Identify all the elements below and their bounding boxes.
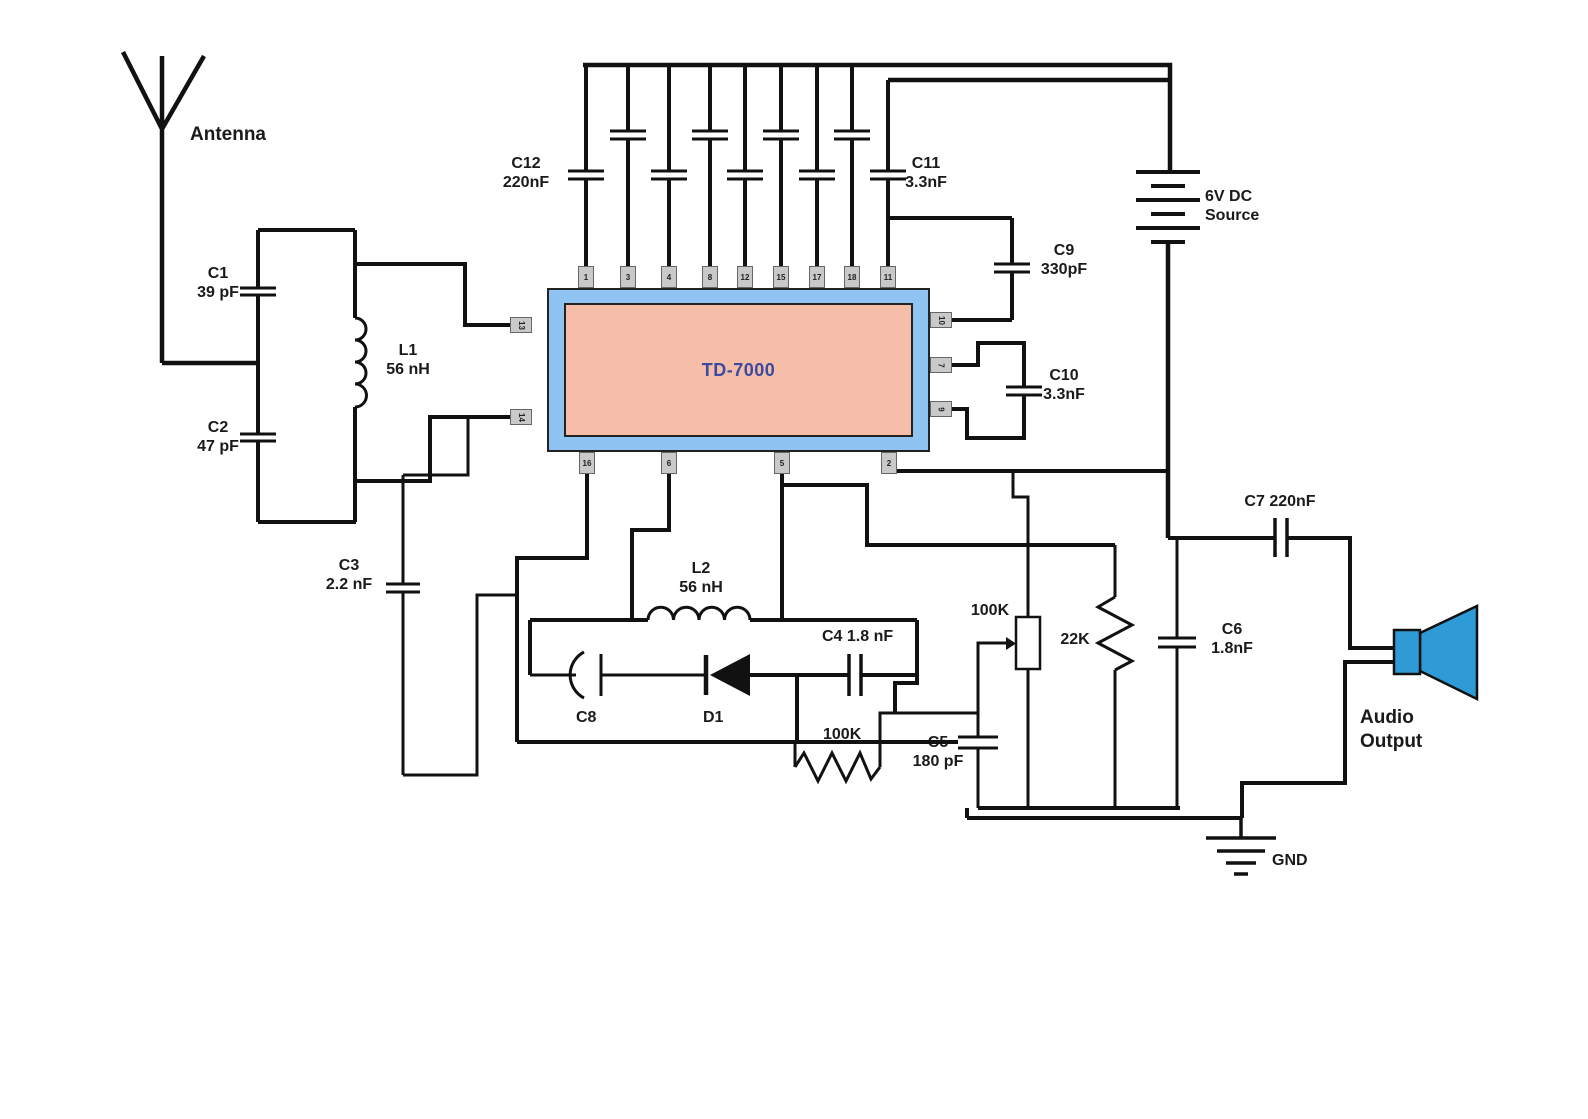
- antenna-label: Antenna: [190, 123, 266, 147]
- ic-pin-15: 15: [773, 266, 789, 288]
- c5-capacitor-icon: [958, 713, 998, 808]
- ic-pin-7: 7: [930, 357, 952, 373]
- ic-pin-16: 16: [579, 452, 595, 474]
- tank-circuit-wires: [258, 230, 356, 522]
- battery-icon: [1136, 172, 1200, 242]
- gnd-icon: [1206, 818, 1276, 874]
- ic-pin-10: 10: [930, 312, 952, 328]
- gnd-label: GND: [1272, 851, 1308, 870]
- c8-capacitor-icon: [530, 652, 706, 698]
- c1-label: C1 39 pF: [178, 264, 258, 302]
- wire-pin5-branch: [782, 485, 1115, 545]
- c8-label: C8: [576, 708, 596, 727]
- l2-label: L2 56 nH: [661, 559, 741, 597]
- l1-inductor-icon: [355, 318, 366, 407]
- wire-pin14: [355, 417, 510, 481]
- d1-label: D1: [703, 708, 723, 727]
- ic-pin-8: 8: [702, 266, 718, 288]
- top-bus-wire: [583, 65, 1170, 172]
- top-capacitor-bank: [568, 65, 906, 266]
- ic-pin-4: 4: [661, 266, 677, 288]
- speaker-icon: [1394, 606, 1477, 699]
- c6-label: C6 1.8nF: [1192, 620, 1272, 658]
- c7-label: C7 220nF: [1220, 492, 1340, 511]
- ic-label: TD-7000: [702, 360, 776, 381]
- c2-label: C2 47 pF: [178, 418, 258, 456]
- ic-pin-14: 14: [510, 409, 532, 425]
- c10-label: C10 3.3nF: [1024, 366, 1104, 404]
- audio-output-label: Audio Output: [1360, 706, 1422, 754]
- ic-pin-3: 3: [620, 266, 636, 288]
- wire-pin16: [517, 474, 587, 742]
- wire-c3-top: [403, 417, 468, 475]
- schematic-canvas: TD-7000 1 3 4 8 12 15 17 18 11 13 14 10 …: [0, 0, 1588, 1119]
- wire-pin6: [632, 474, 669, 620]
- ic-pin-12: 12: [737, 266, 753, 288]
- ic-chip: TD-7000: [547, 288, 930, 452]
- c11-label: C11 3.3nF: [886, 154, 966, 192]
- ic-pin-1: 1: [578, 266, 594, 288]
- wire-c3-return: [403, 595, 517, 775]
- r1-resistor-icon: [795, 742, 880, 781]
- ic-pin-5: 5: [774, 452, 790, 474]
- r2-resistor-icon: [1098, 545, 1132, 808]
- ic-pin-9: 9: [930, 401, 952, 417]
- wire-pot-wiper: [880, 643, 1008, 742]
- c3-capacitor-icon: [386, 475, 420, 775]
- battery-label: 6V DC Source: [1205, 187, 1259, 225]
- l1-label: L1 56 nH: [368, 341, 448, 379]
- bottom-bus-wire: [967, 808, 1242, 818]
- d1-diode-icon: [706, 654, 848, 742]
- wire-pin2: [889, 471, 1168, 474]
- c6-capacitor-icon: [1158, 538, 1196, 808]
- pot-label: 100K: [950, 601, 1030, 620]
- ic-pin-18: 18: [844, 266, 860, 288]
- ic-pin-6: 6: [661, 452, 677, 474]
- c3-label: C3 2.2 nF: [309, 556, 389, 594]
- schematic-wires: [0, 0, 1588, 1119]
- ic-pin-2: 2: [881, 452, 897, 474]
- ic-pin-13: 13: [510, 317, 532, 333]
- ic-body: TD-7000: [564, 303, 913, 437]
- c4-label: C4 1.8 nF: [822, 627, 893, 646]
- r2-label: 22K: [1035, 630, 1115, 649]
- c12-label: C12 220nF: [486, 154, 566, 192]
- wire-pin13: [355, 264, 510, 325]
- c9-label: C9 330pF: [1024, 241, 1104, 279]
- antenna-icon: [123, 52, 258, 363]
- ic-pin-11: 11: [880, 266, 896, 288]
- ic-pin-17: 17: [809, 266, 825, 288]
